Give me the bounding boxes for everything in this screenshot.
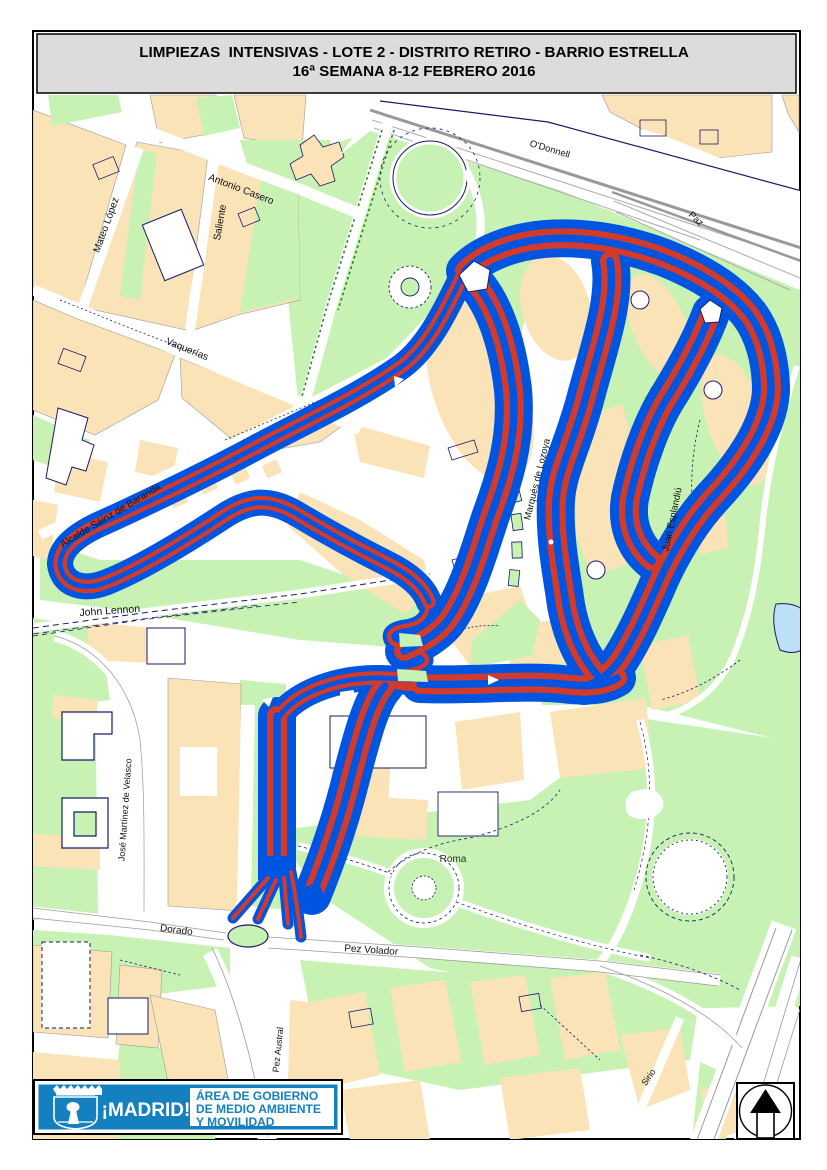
svg-text:16ª SEMANA 8-12 FEBRERO 2016: 16ª SEMANA 8-12 FEBRERO 2016 <box>292 63 535 80</box>
svg-text:Roma: Roma <box>440 854 467 865</box>
svg-text:DE MEDIO AMBIENTE: DE MEDIO AMBIENTE <box>196 1102 321 1116</box>
svg-text:¡MADRID!: ¡MADRID! <box>102 1100 191 1121</box>
svg-text:Y MOVILIDAD: Y MOVILIDAD <box>196 1115 275 1129</box>
svg-text:ÁREA DE GOBIERNO: ÁREA DE GOBIERNO <box>196 1088 318 1103</box>
svg-text:LIMPIEZAS INTENSIVAS - LOTE 2: LIMPIEZAS INTENSIVAS - LOTE 2 - DISTRITO… <box>139 44 689 61</box>
